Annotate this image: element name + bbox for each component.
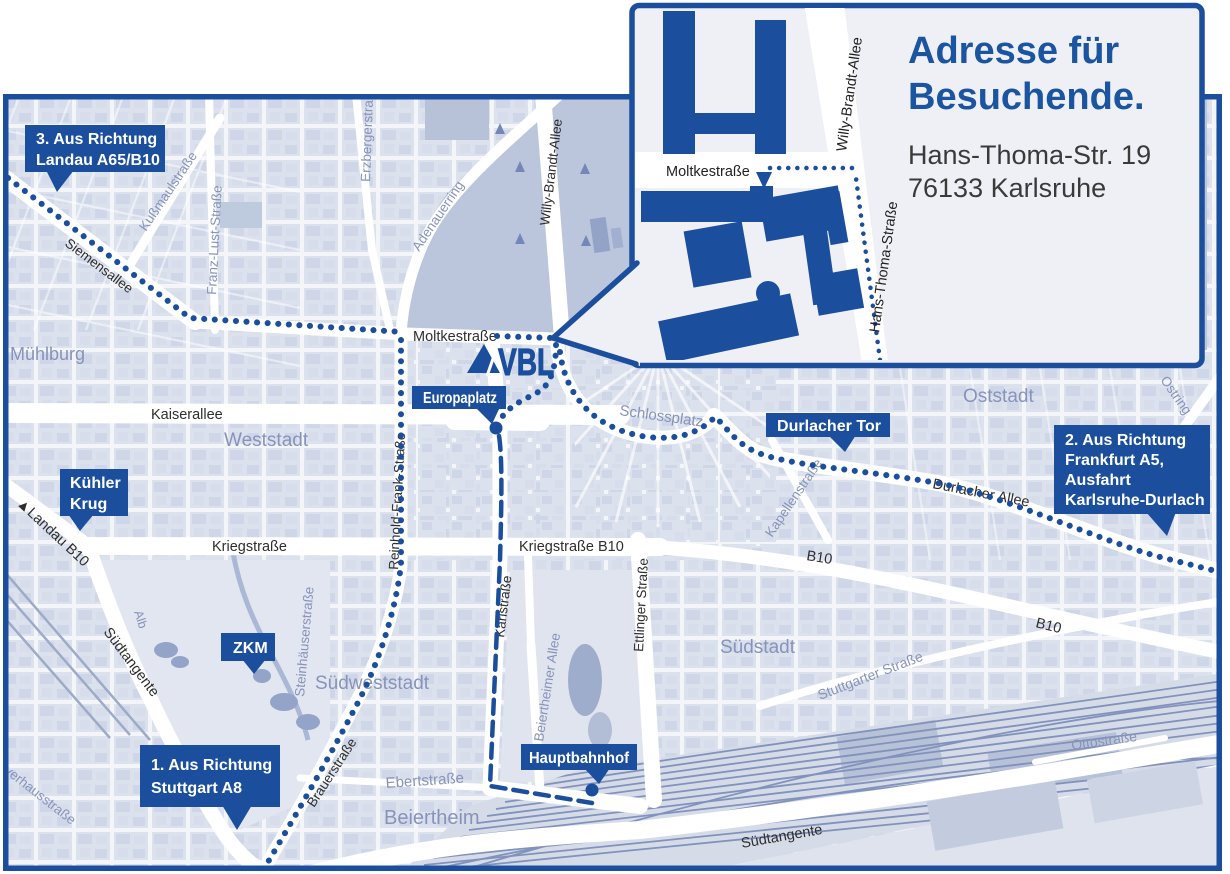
svg-text:Landau A65/B10: Landau A65/B10	[36, 152, 160, 169]
svg-text:Europaplatz: Europaplatz	[423, 390, 497, 407]
svg-text:Moltkestraße: Moltkestraße	[666, 164, 750, 180]
svg-text:Ausfahrt: Ausfahrt	[1065, 472, 1131, 489]
svg-text:Adresse für: Adresse für	[908, 30, 1119, 72]
svg-text:Besuchende.: Besuchende.	[908, 76, 1145, 118]
svg-text:Moltkestraße: Moltkestraße	[413, 329, 497, 345]
svg-text:Weststadt: Weststadt	[224, 430, 309, 451]
svg-text:Karlsruhe-Durlach: Karlsruhe-Durlach	[1065, 492, 1205, 509]
svg-text:Beiertheim: Beiertheim	[384, 807, 480, 829]
svg-text:Kriegstraße: Kriegstraße	[212, 539, 287, 555]
svg-text:Durlacher Tor: Durlacher Tor	[777, 418, 881, 435]
svg-text:Kriegstraße B10: Kriegstraße B10	[519, 539, 624, 555]
svg-text:Oststadt: Oststadt	[963, 386, 1034, 407]
svg-text:Mühlburg: Mühlburg	[10, 344, 85, 364]
svg-text:Krug: Krug	[70, 496, 107, 513]
svg-text:76133 Karlsruhe: 76133 Karlsruhe	[908, 173, 1106, 203]
svg-text:Südstadt: Südstadt	[720, 637, 796, 658]
svg-text:Hans-Thoma-Str. 19: Hans-Thoma-Str. 19	[908, 140, 1151, 170]
svg-text:Stuttgart A8: Stuttgart A8	[151, 780, 242, 797]
svg-text:2. Aus Richtung: 2. Aus Richtung	[1065, 432, 1186, 449]
svg-text:VBL: VBL	[498, 342, 554, 384]
svg-text:Kühler: Kühler	[70, 475, 121, 492]
svg-text:ZKM: ZKM	[233, 640, 268, 657]
svg-text:Kaiserallee: Kaiserallee	[151, 407, 223, 423]
svg-text:3. Aus Richtung: 3. Aus Richtung	[36, 131, 157, 148]
svg-text:Hauptbahnhof: Hauptbahnhof	[529, 750, 630, 767]
svg-text:Frankfurt A5,: Frankfurt A5,	[1065, 452, 1164, 469]
svg-text:1. Aus Richtung: 1. Aus Richtung	[151, 757, 272, 774]
